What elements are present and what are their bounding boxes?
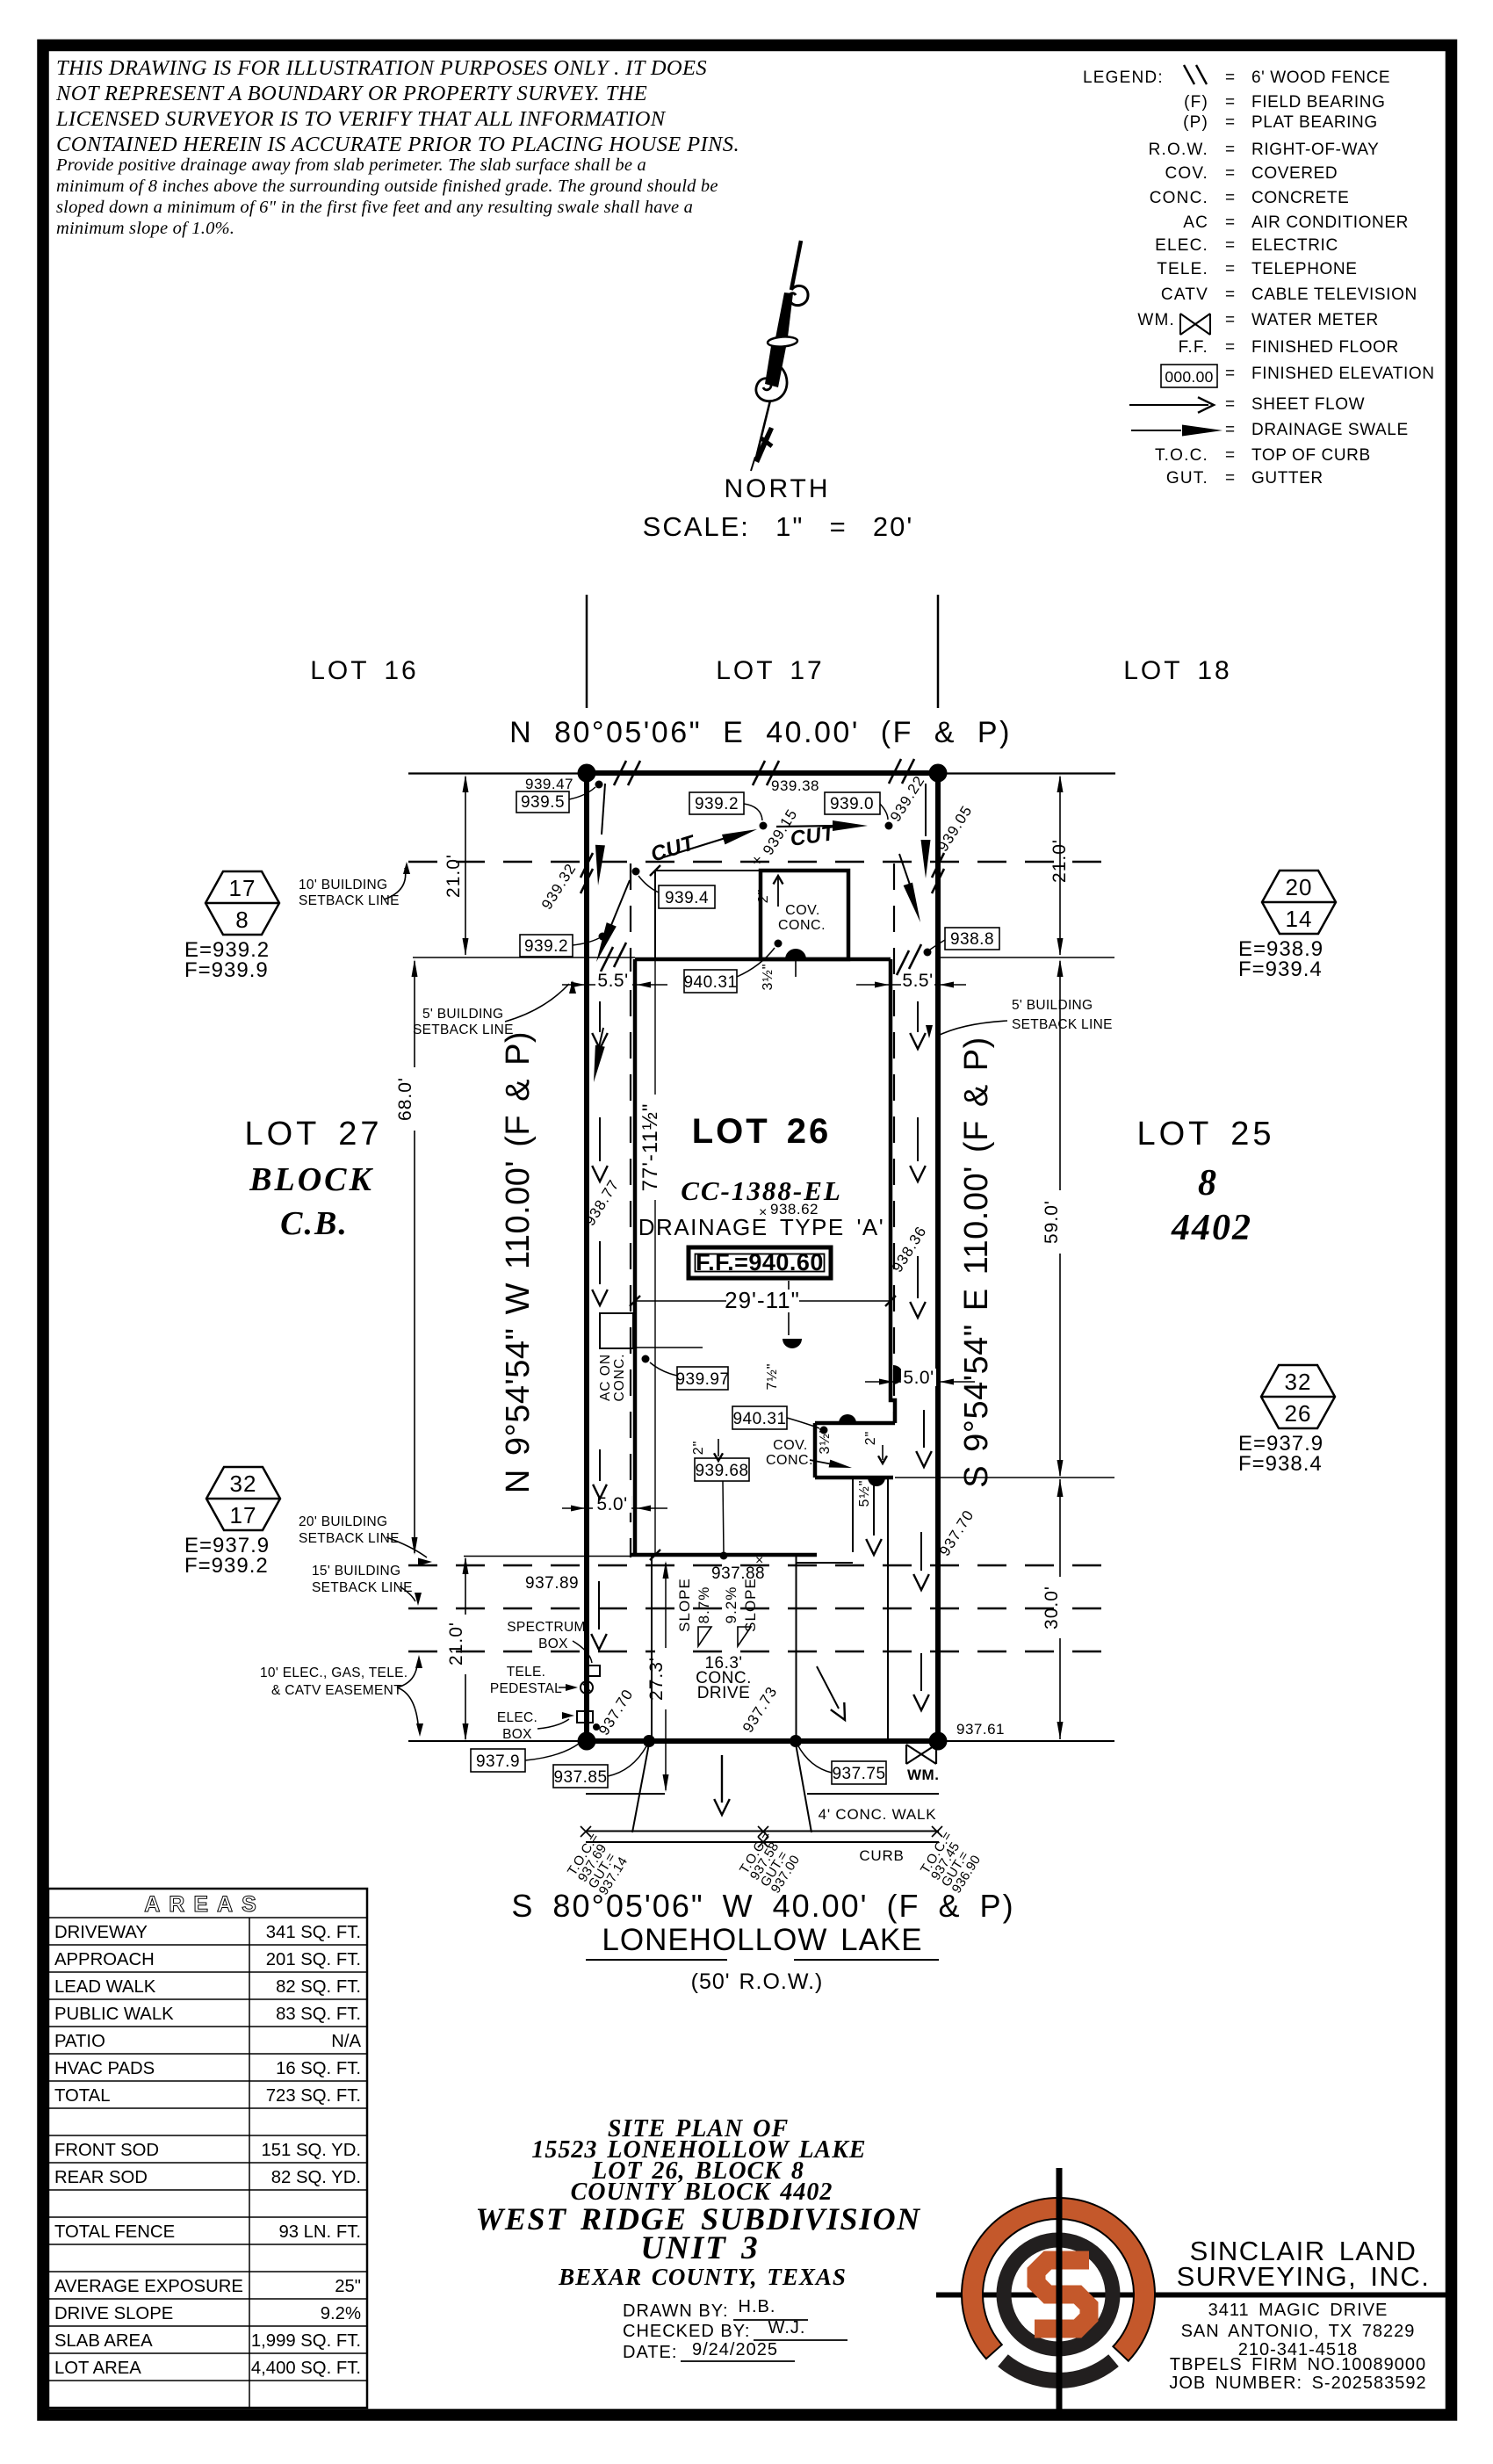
svg-text:F.F.=940.60: F.F.=940.60 — [696, 1249, 824, 1275]
svg-text:5' BUILDING: 5' BUILDING — [1012, 998, 1093, 1013]
svg-text:2": 2" — [756, 889, 771, 904]
svg-text:LICENSED SURVEYOR IS TO VERIFY: LICENSED SURVEYOR IS TO VERIFY THAT ALL … — [55, 107, 667, 131]
svg-text:=: = — [1225, 365, 1236, 383]
svg-text:SAN ANTONIO, TX 78229: SAN ANTONIO, TX 78229 — [1181, 2322, 1416, 2341]
svg-text:=: = — [1225, 113, 1236, 132]
svg-text:AC ON: AC ON — [598, 1354, 613, 1401]
svg-text:WM.: WM. — [907, 1767, 939, 1783]
svg-text:LEAD WALK: LEAD WALK — [54, 1977, 156, 1997]
svg-text:N 9°54'54" W 110.00' (F & P): N 9°54'54" W 110.00' (F & P) — [500, 1031, 537, 1493]
svg-text:minimum of 8 inches above the: minimum of 8 inches above the surroundin… — [56, 177, 718, 196]
svg-text:(P): (P) — [1183, 113, 1208, 132]
svg-text:82 SQ. YD.: 82 SQ. YD. — [271, 2168, 361, 2187]
svg-text:AC: AC — [1183, 213, 1208, 232]
svg-text:CONTAINED HEREIN IS ACCURATE P: CONTAINED HEREIN IS ACCURATE PRIOR TO PL… — [56, 133, 739, 156]
svg-text:minimum slope of 1.0%.: minimum slope of 1.0%. — [56, 219, 234, 238]
svg-text:=: = — [1225, 260, 1236, 278]
svg-text:939.0: 939.0 — [830, 795, 874, 813]
svg-text:CONC.: CONC. — [778, 918, 826, 933]
svg-text:COV.: COV. — [785, 903, 820, 918]
svg-text:82 SQ. FT.: 82 SQ. FT. — [276, 1977, 361, 1997]
svg-text:3½": 3½" — [818, 1427, 833, 1455]
svg-text:4402: 4402 — [1171, 1208, 1252, 1248]
svg-text:LOT 17: LOT 17 — [716, 656, 825, 685]
svg-text:4' CONC. WALK: 4' CONC. WALK — [819, 1806, 937, 1823]
svg-text:5.5': 5.5' — [902, 971, 933, 991]
svg-text:TOP OF CURB: TOP OF CURB — [1251, 446, 1371, 465]
svg-text:17: 17 — [230, 1502, 257, 1528]
svg-text:8.7%: 8.7% — [696, 1586, 712, 1624]
svg-text:9.2%: 9.2% — [321, 2304, 361, 2323]
svg-text:77'-11½": 77'-11½" — [638, 1103, 662, 1192]
svg-text:3411 MAGIC DRIVE: 3411 MAGIC DRIVE — [1208, 2301, 1388, 2320]
svg-text:SETBACK LINE: SETBACK LINE — [299, 1531, 400, 1546]
svg-text:S 9°54'54" E 110.00' (F & P): S 9°54'54" E 110.00' (F & P) — [958, 1037, 995, 1488]
svg-text:LOT 16: LOT 16 — [310, 656, 419, 685]
svg-text:PLAT BEARING: PLAT BEARING — [1251, 113, 1378, 132]
svg-text:& CATV EASEMENT: & CATV EASEMENT — [271, 1683, 402, 1698]
svg-text:DRAWN BY:: DRAWN BY: — [623, 2301, 729, 2321]
svg-text:TBPELS FIRM NO.10089000: TBPELS FIRM NO.10089000 — [1170, 2355, 1426, 2374]
svg-text:PEDESTAL: PEDESTAL — [490, 1681, 562, 1696]
svg-text:TELEPHONE: TELEPHONE — [1251, 260, 1358, 278]
svg-text:21.0': 21.0' — [446, 1622, 466, 1666]
svg-text:CATV: CATV — [1161, 285, 1208, 304]
svg-text:BEXAR COUNTY, TEXAS: BEXAR COUNTY, TEXAS — [558, 2264, 847, 2290]
svg-text:DRIVE: DRIVE — [697, 1684, 751, 1702]
svg-text:937.89: 937.89 — [525, 1574, 579, 1593]
svg-text:=: = — [1225, 469, 1236, 488]
svg-text:10' ELEC., GAS, TELE.: 10' ELEC., GAS, TELE. — [260, 1666, 408, 1680]
svg-text:FINISHED FLOOR: FINISHED FLOOR — [1251, 338, 1399, 357]
svg-text:PATIO: PATIO — [54, 2032, 105, 2051]
svg-text:Provide positive drainage away: Provide positive drainage away from slab… — [55, 155, 646, 175]
svg-text:UNIT 3: UNIT 3 — [640, 2230, 759, 2266]
svg-text:BOX: BOX — [502, 1727, 532, 1742]
svg-text:SETBACK LINE: SETBACK LINE — [413, 1022, 514, 1037]
svg-text:16 SQ. FT.: 16 SQ. FT. — [276, 2059, 361, 2078]
svg-text:CONC.: CONC. — [612, 1354, 627, 1402]
svg-text:939.38: 939.38 — [771, 777, 819, 794]
svg-text:939.5: 939.5 — [521, 793, 565, 812]
svg-text:940.31: 940.31 — [732, 1410, 786, 1428]
svg-text:ELEC.: ELEC. — [497, 1710, 537, 1725]
svg-text:2": 2" — [691, 1441, 706, 1456]
svg-text:PUBLIC WALK: PUBLIC WALK — [54, 2005, 174, 2024]
svg-text:723 SQ. FT.: 723 SQ. FT. — [266, 2086, 361, 2106]
svg-text:CONCRETE: CONCRETE — [1251, 189, 1349, 207]
svg-text:SURVEYING, INC.: SURVEYING, INC. — [1177, 2261, 1431, 2292]
svg-text:ELEC.: ELEC. — [1155, 236, 1208, 255]
svg-text:201 SQ. FT.: 201 SQ. FT. — [266, 1950, 361, 1969]
svg-text:DATE:: DATE: — [623, 2343, 677, 2362]
svg-text:83 SQ. FT.: 83 SQ. FT. — [276, 2005, 361, 2024]
svg-text:REAR SOD: REAR SOD — [54, 2168, 148, 2187]
svg-text:=: = — [1225, 285, 1236, 304]
svg-text:CURB: CURB — [859, 1847, 904, 1864]
svg-text:4,400 SQ. FT.: 4,400 SQ. FT. — [251, 2359, 361, 2378]
svg-text:LOT 27: LOT 27 — [244, 1116, 382, 1153]
svg-text:TOTAL FENCE: TOTAL FENCE — [54, 2222, 175, 2242]
svg-text:9.2%: 9.2% — [723, 1586, 739, 1624]
svg-text:BOX: BOX — [538, 1637, 568, 1651]
svg-text:151 SQ. YD.: 151 SQ. YD. — [262, 2141, 362, 2160]
svg-text:LONEHOLLOW LAKE: LONEHOLLOW LAKE — [602, 1923, 922, 1957]
svg-text:59.0': 59.0' — [1042, 1200, 1062, 1244]
svg-text:LOT AREA: LOT AREA — [54, 2359, 141, 2378]
svg-text:CONC.: CONC. — [1150, 189, 1208, 207]
svg-text:ELECTRIC: ELECTRIC — [1251, 236, 1338, 255]
svg-text:DRAINAGE SWALE: DRAINAGE SWALE — [1251, 421, 1409, 439]
svg-text:NOT REPRESENT A BOUNDARY OR PR: NOT REPRESENT A BOUNDARY OR PROPERTY SUR… — [55, 82, 647, 105]
svg-text:LOT 26: LOT 26 — [692, 1112, 832, 1151]
svg-text:21.0': 21.0' — [444, 854, 464, 898]
svg-text:WATER METER: WATER METER — [1251, 311, 1379, 329]
svg-text:937.9: 937.9 — [476, 1752, 520, 1771]
svg-text:=: = — [1225, 69, 1236, 87]
svg-text:(50' R.O.W.): (50' R.O.W.) — [691, 1969, 824, 1994]
svg-text:26: 26 — [1285, 1400, 1312, 1427]
svg-text:FRONT SOD: FRONT SOD — [54, 2141, 159, 2160]
svg-text:17: 17 — [229, 875, 256, 901]
svg-text:6' WOOD FENCE: 6' WOOD FENCE — [1251, 69, 1390, 87]
svg-text:APPROACH: APPROACH — [54, 1950, 155, 1969]
svg-text:CONC.: CONC. — [766, 1453, 813, 1468]
svg-text:20: 20 — [1286, 874, 1313, 900]
svg-text:25": 25" — [335, 2277, 361, 2296]
svg-text:HVAC PADS: HVAC PADS — [54, 2059, 155, 2078]
svg-text:20' BUILDING: 20' BUILDING — [299, 1514, 387, 1529]
svg-text:SCALE: 1" = 20': SCALE: 1" = 20' — [643, 511, 914, 542]
svg-text:2": 2" — [863, 1431, 878, 1446]
svg-text:C.B.: C.B. — [280, 1205, 349, 1242]
svg-text:F.F.: F.F. — [1179, 338, 1208, 357]
svg-text:SLOPE: SLOPE — [676, 1578, 693, 1632]
svg-text:AIR CONDITIONER: AIR CONDITIONER — [1251, 213, 1409, 232]
svg-text:939.2: 939.2 — [695, 795, 739, 813]
svg-text:F=939.2: F=939.2 — [184, 1554, 269, 1578]
svg-text:=: = — [1225, 141, 1236, 159]
svg-text:RIGHT-OF-WAY: RIGHT-OF-WAY — [1251, 141, 1379, 159]
svg-text:COVERED: COVERED — [1251, 164, 1338, 183]
svg-text:937.61: 937.61 — [956, 1721, 1005, 1738]
svg-text:32: 32 — [1285, 1369, 1312, 1395]
svg-text:15' BUILDING: 15' BUILDING — [312, 1564, 400, 1579]
svg-text:F=938.4: F=938.4 — [1238, 1452, 1323, 1476]
svg-text:937.75: 937.75 — [832, 1765, 885, 1783]
svg-text:=: = — [1225, 164, 1236, 183]
svg-text:CABLE TELEVISION: CABLE TELEVISION — [1251, 285, 1417, 304]
svg-text:N 80°05'06" E 40.00' (F & P): N 80°05'06" E 40.00' (F & P) — [509, 716, 1012, 749]
svg-text:SETBACK LINE: SETBACK LINE — [299, 893, 400, 908]
svg-text:14: 14 — [1286, 906, 1313, 932]
svg-text:=: = — [1225, 421, 1236, 439]
svg-text:DRIVEWAY: DRIVEWAY — [54, 1923, 148, 1942]
svg-text:10' BUILDING: 10' BUILDING — [299, 878, 387, 892]
svg-text:341 SQ. FT.: 341 SQ. FT. — [266, 1923, 361, 1942]
svg-text:DRIVE SLOPE: DRIVE SLOPE — [54, 2304, 173, 2323]
svg-text:939.68: 939.68 — [695, 1462, 748, 1480]
svg-text:9/24/2025: 9/24/2025 — [692, 2340, 778, 2359]
svg-text:T.O.C.: T.O.C. — [1155, 446, 1208, 465]
svg-text:BLOCK: BLOCK — [249, 1161, 374, 1198]
svg-text:sloped down a minimum of 6" in: sloped down a minimum of 6" in the first… — [56, 198, 693, 217]
svg-text:939.47: 939.47 — [525, 776, 573, 792]
svg-text:GUT.: GUT. — [1166, 469, 1208, 488]
svg-text:93 LN. FT.: 93 LN. FT. — [278, 2222, 361, 2242]
svg-text:SLAB AREA: SLAB AREA — [54, 2331, 153, 2351]
svg-text:×: × — [755, 1553, 764, 1568]
svg-text:F=939.4: F=939.4 — [1238, 957, 1323, 981]
svg-text:AREAS: AREAS — [144, 1892, 265, 1917]
svg-text:TELE.: TELE. — [507, 1665, 546, 1680]
svg-text:FIELD BEARING: FIELD BEARING — [1251, 93, 1385, 112]
svg-text:SPECTRUM: SPECTRUM — [507, 1620, 585, 1635]
svg-text:LOT 25: LOT 25 — [1136, 1116, 1274, 1153]
svg-text:000.00: 000.00 — [1165, 368, 1213, 386]
svg-text:938.8: 938.8 — [950, 930, 994, 949]
svg-text:DRAINAGE TYPE 'A': DRAINAGE TYPE 'A' — [638, 1214, 884, 1240]
svg-text:W.J.: W.J. — [768, 2318, 806, 2338]
svg-text:=: = — [1225, 213, 1236, 232]
svg-text:SETBACK LINE: SETBACK LINE — [312, 1580, 413, 1595]
svg-text:939.2: 939.2 — [524, 937, 568, 956]
svg-text:CHECKED BY:: CHECKED BY: — [623, 2322, 750, 2341]
svg-text:3½": 3½" — [761, 964, 775, 991]
svg-text:937.85: 937.85 — [553, 1768, 607, 1787]
svg-text:COV.: COV. — [1165, 164, 1208, 183]
svg-text:FINISHED ELEVATION: FINISHED ELEVATION — [1251, 365, 1435, 383]
svg-text:940.31: 940.31 — [683, 973, 737, 992]
svg-text:TELE.: TELE. — [1157, 260, 1208, 278]
svg-text:=: = — [1225, 93, 1236, 112]
svg-text:WM.: WM. — [1137, 311, 1175, 329]
svg-text:NORTH: NORTH — [724, 474, 830, 503]
svg-text:5.5': 5.5' — [597, 971, 628, 991]
svg-text:GUTTER: GUTTER — [1251, 469, 1324, 488]
svg-text:29'-11": 29'-11" — [725, 1287, 800, 1313]
svg-text:N/A: N/A — [331, 2032, 361, 2051]
svg-text:939.97: 939.97 — [675, 1370, 729, 1389]
svg-text:H.B.: H.B. — [739, 2297, 776, 2316]
svg-text:JOB NUMBER: S-202583592: JOB NUMBER: S-202583592 — [1169, 2374, 1426, 2393]
svg-text:SHEET FLOW: SHEET FLOW — [1251, 395, 1365, 414]
svg-text:SLOPE: SLOPE — [742, 1578, 759, 1632]
svg-text:COV.: COV. — [773, 1438, 808, 1453]
svg-text:5.0': 5.0' — [903, 1368, 934, 1388]
svg-text:=: = — [1225, 446, 1236, 465]
svg-text:=: = — [1225, 395, 1236, 414]
svg-text:8: 8 — [235, 907, 249, 933]
svg-text:LEGEND:: LEGEND: — [1083, 69, 1164, 87]
svg-text:32: 32 — [230, 1470, 257, 1497]
svg-text:F=939.9: F=939.9 — [184, 958, 269, 982]
svg-text:×: × — [753, 852, 762, 869]
svg-text:68.0': 68.0' — [395, 1077, 415, 1121]
svg-text:(F): (F) — [1184, 93, 1208, 112]
svg-text:=: = — [1225, 236, 1236, 255]
svg-text:TOTAL: TOTAL — [54, 2086, 111, 2106]
svg-text:7½": 7½" — [765, 1363, 780, 1391]
svg-text:=: = — [1225, 311, 1236, 329]
svg-text:21.0': 21.0' — [1049, 839, 1070, 883]
svg-text:1,999 SQ. FT.: 1,999 SQ. FT. — [251, 2331, 361, 2351]
svg-text:5' BUILDING: 5' BUILDING — [422, 1007, 503, 1022]
svg-text:S 80°05'06" W 40.00' (F & P): S 80°05'06" W 40.00' (F & P) — [511, 1888, 1014, 1924]
svg-text:LOT 18: LOT 18 — [1123, 656, 1232, 685]
svg-text:AVERAGE EXPOSURE: AVERAGE EXPOSURE — [54, 2277, 243, 2296]
svg-text:=: = — [1225, 338, 1236, 357]
svg-text:THIS DRAWING IS FOR ILLUSTRATI: THIS DRAWING IS FOR ILLUSTRATION PURPOSE… — [56, 56, 707, 80]
svg-text:27.3': 27.3' — [646, 1657, 667, 1701]
svg-text:SETBACK LINE: SETBACK LINE — [1012, 1017, 1113, 1032]
svg-text:=: = — [1225, 189, 1236, 207]
svg-text:8: 8 — [1198, 1163, 1217, 1203]
svg-text:5½": 5½" — [857, 1480, 872, 1507]
svg-text:939.4: 939.4 — [665, 889, 709, 907]
svg-text:R.O.W.: R.O.W. — [1149, 141, 1208, 159]
